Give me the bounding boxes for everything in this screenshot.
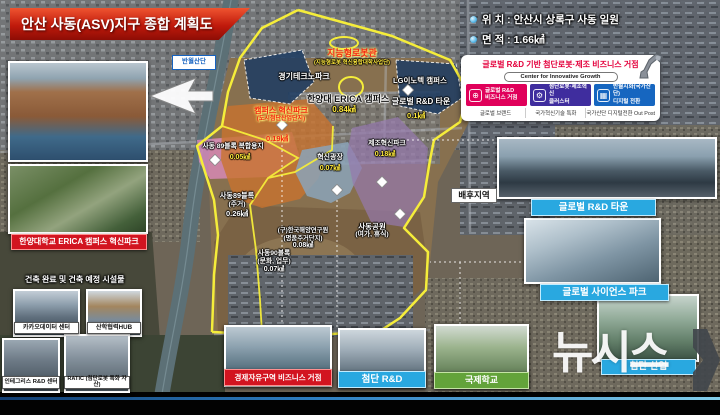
page-title: 안산 사동(ASV)지구 종합 계획도 — [10, 8, 250, 40]
info-box-label: 글로벌 R&D 비즈니스 거점 — [485, 88, 517, 103]
block90-label: 사동90블록 (문화, 업무) 0.07㎢ — [246, 250, 302, 275]
banwol-complex-label: 반월산단 — [172, 55, 216, 70]
ratic-label: RATIC (첨단로봇 특화 자산) — [64, 376, 130, 389]
kakao-data-center-label: 카카오데이터 센터 — [14, 322, 79, 334]
lg-innotek-label: LG이노텍 캠퍼스 — [388, 76, 452, 85]
info-panel-boxes: ⊕ 글로벌 R&D 비즈니스 거점 ⚙ 첨단로봇·제조혁신 클러스터 ▦ 반월시… — [466, 84, 655, 106]
manufacturing-park-label: 제조혁신파크 — [362, 140, 412, 148]
photo-industrial-complex-aerial — [8, 61, 148, 162]
rnd-town-area-value: 0.1㎢ — [398, 111, 434, 120]
info-box-robot-cluster: ⚙ 첨단로봇·제조혁신 클러스터 — [530, 84, 591, 106]
hinterland-label: 배후지역 — [451, 188, 497, 203]
info-box-global-rnd: ⊕ 글로벌 R&D 비즈니스 거점 — [466, 84, 527, 106]
info-caption: 글로벌 브랜드 — [466, 108, 526, 118]
bottom-black-bar — [0, 392, 720, 415]
section-title: 건축 완료 및 건축 예정 시설물 — [25, 274, 124, 285]
plan-map-canvas: 안산 사동(ASV)지구 종합 계획도 위 치 : 안산시 상록구 사동 일원 … — [0, 0, 720, 415]
photo-erica-campus-aerial — [8, 164, 148, 234]
robot-hall-sub-label: (지능형로봇 혁신융합대학사업단) — [302, 60, 402, 67]
info-panel-captions: 글로벌 브랜드 국가혁신기술 특화 국가산단 디지털전환 Out Post — [466, 108, 655, 118]
campus-innovation-park-label: 캠퍼스 혁신파크 — [248, 106, 314, 116]
erica-innovation-park-label: 한양대학교 ERICA 캠퍼스 혁신파크 — [11, 234, 147, 250]
location-line: 위 치 : 안산시 상록구 사동 일원 — [470, 12, 619, 27]
area-text: 면 적 : 1.66㎢ — [482, 32, 545, 47]
campus-innovation-park-area: 0.19㎢ — [258, 134, 296, 143]
kiost-site-label: (구)한국해양연구원 (명품주거단지) 0.08㎢ — [268, 227, 338, 250]
manufacturing-park-area: 0.18㎢ — [368, 151, 402, 159]
info-caption: 국가산단 디지털전환 Out Post — [586, 108, 655, 118]
innovation-plaza-area: 0.07㎢ — [314, 165, 346, 173]
rnd-town-map-label: 글로벌 R&D 타운 — [388, 97, 454, 107]
robot-arm-image — [636, 52, 664, 80]
location-info: 위 치 : 안산시 상록구 사동 일원 면 적 : 1.66㎢ — [470, 12, 619, 52]
info-panel-title: 글로벌 R&D 기반 첨단로봇·제조 비즈니스 거점 — [466, 59, 655, 70]
sadong-park-label: 사동공원 (여가, 휴식) — [346, 222, 398, 239]
info-box-digital: ▦ 반월시화(국가산단) 디지털 전환 — [594, 84, 655, 106]
integris-rnd-center-label: 인테그리스 R&D 센터 — [2, 376, 60, 389]
innovation-plaza-label: 혁신광장 — [308, 154, 352, 162]
photo-global-science-park — [524, 218, 661, 284]
info-panel: 글로벌 R&D 기반 첨단로봇·제조 비즈니스 거점 Center for In… — [461, 55, 660, 121]
advanced-rnd-label: 첨단 R&D — [338, 371, 426, 388]
block89-mixed-label: 사동 89블록 복합용지 — [201, 143, 265, 151]
photo-global-rnd-town — [497, 137, 717, 199]
bottom-accent-line — [0, 397, 720, 400]
location-text: 위 치 : 안산시 상록구 사동 일원 — [482, 12, 619, 27]
digital-grid-icon: ▦ — [597, 89, 610, 102]
newsis-watermark: 뉴시스 — [552, 330, 667, 375]
page-title-text: 안산 사동(ASV)지구 종합 계획도 — [21, 14, 212, 34]
bullet-icon — [470, 16, 477, 23]
block89-residential-label: 사동89블록 (주거) 0.26㎢ — [212, 192, 262, 218]
info-box-label: 반월시화(국가산단) 디지털 전환 — [613, 84, 652, 106]
campus-innovation-park-sub: (도시첨단산업단지) — [244, 116, 318, 123]
area-line: 면 적 : 1.66㎢ — [470, 32, 619, 47]
globe-icon: ⊕ — [469, 89, 482, 102]
free-economic-zone-label: 경제자유구역 비즈니스 거점 — [224, 369, 332, 386]
robot-hall-label: 지능형로봇관 — [318, 48, 386, 59]
industry-academia-hub-label: 산학협력HUB — [87, 322, 141, 334]
gtp-label: 경기테크노파크 — [264, 72, 344, 82]
info-caption: 국가혁신기술 특화 — [526, 108, 586, 118]
info-panel-subtitle: Center for Innovative Growth — [504, 72, 618, 82]
bullet-icon — [470, 36, 477, 43]
block89-mixed-area: 0.05㎢ — [223, 154, 257, 162]
erica-campus-label: 한양대 ERICA 캠퍼스 — [306, 94, 390, 105]
erica-area-value: 0.84㎢ — [322, 105, 366, 115]
global-science-park-label: 글로벌 사이언스 파크 — [540, 284, 669, 301]
robot-arm-icon: ⚙ — [533, 89, 546, 102]
international-school-label: 국제학교 — [434, 372, 529, 389]
global-rnd-town-label: 글로벌 R&D 타운 — [531, 199, 656, 216]
info-box-label: 첨단로봇·제조혁신 클러스터 — [549, 84, 588, 106]
